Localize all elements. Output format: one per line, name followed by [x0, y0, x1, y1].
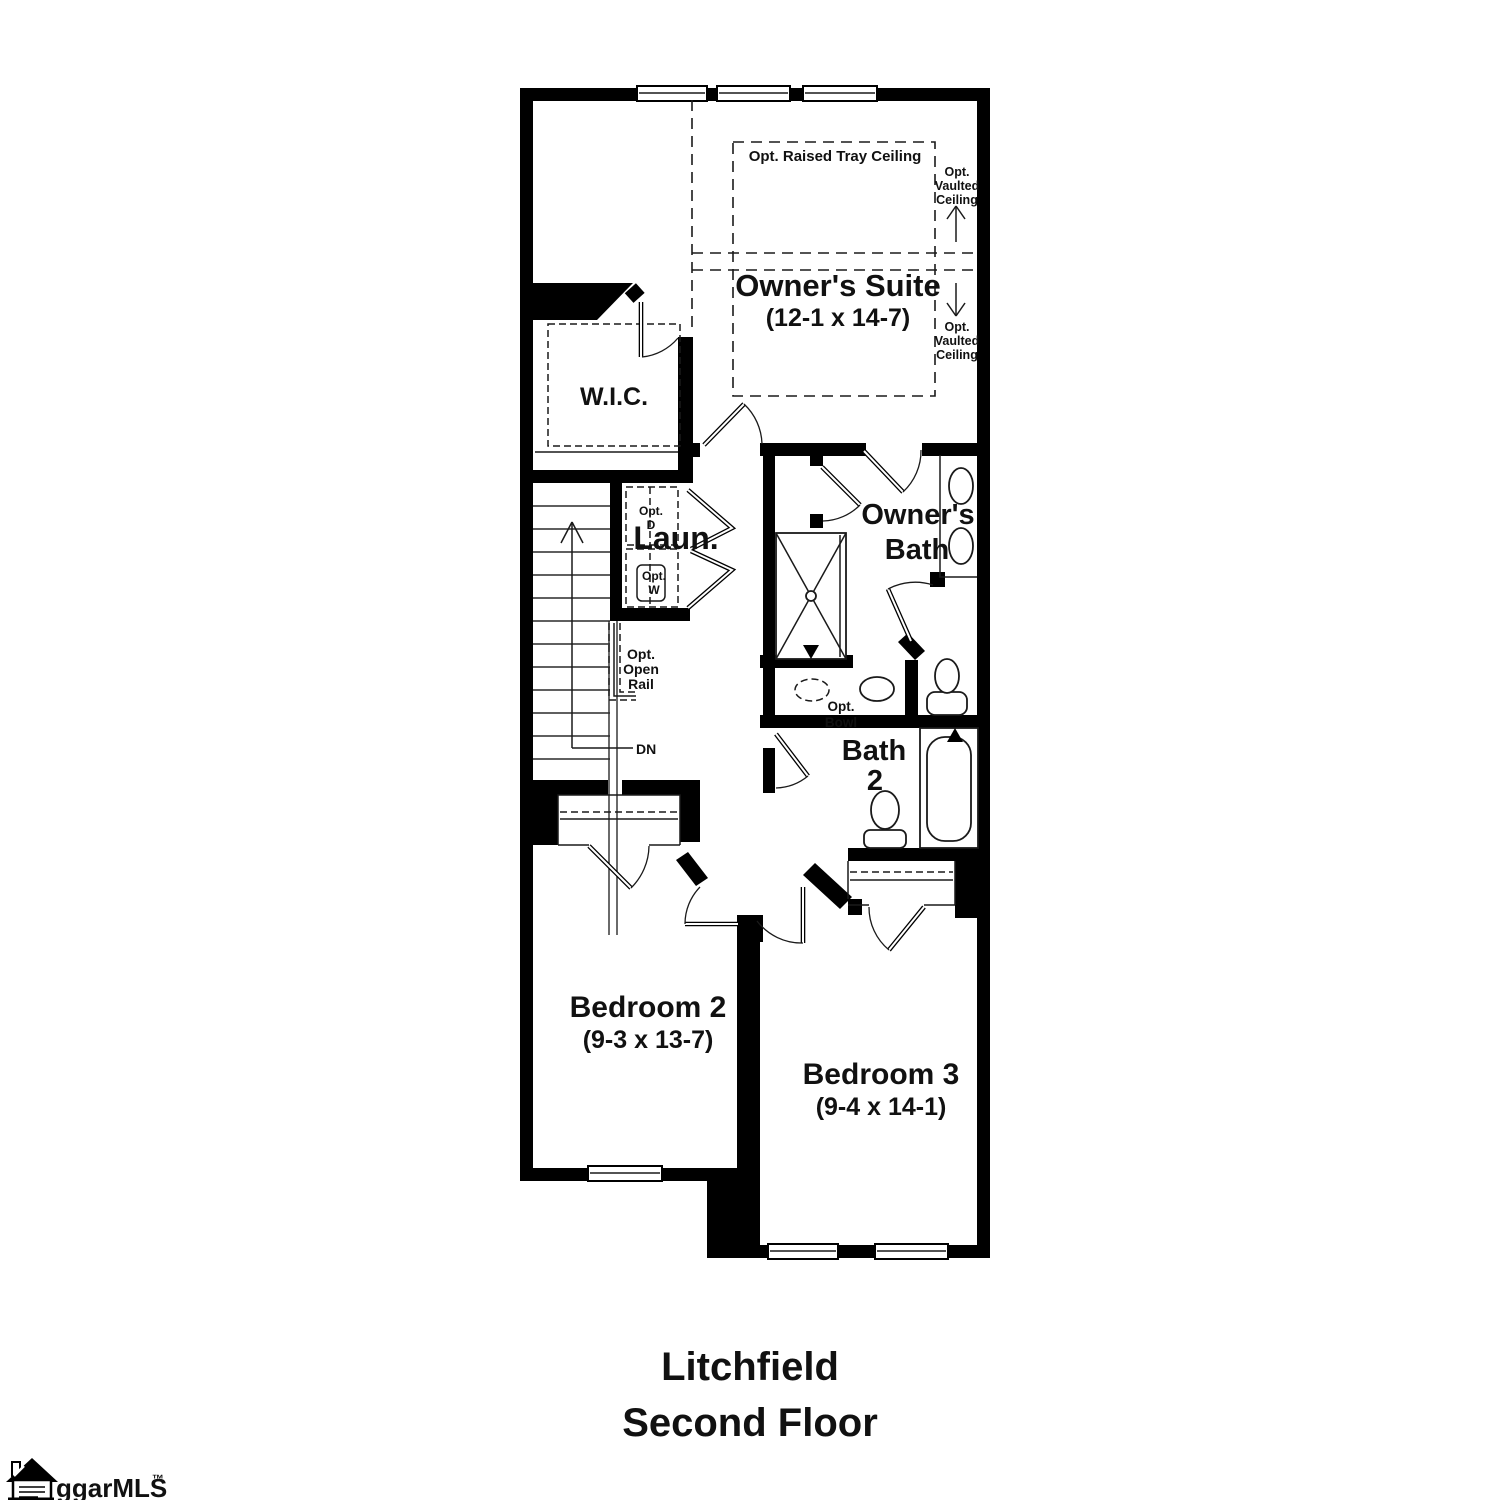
owners-suite-door: [704, 404, 762, 445]
label-dn: DN: [636, 741, 656, 757]
label-opt-w: Opt.: [642, 569, 666, 583]
mls-logo-tm: ™: [152, 1472, 164, 1486]
plan-title: Litchfield Second Floor: [622, 1345, 878, 1445]
label-laundry: Laun.: [633, 520, 718, 556]
vaulted-down-arrow: [947, 283, 965, 316]
bedroom2-closet: [558, 795, 680, 845]
vaulted-up-arrow: [947, 206, 965, 242]
svg-text:Bowl: Bowl: [825, 715, 857, 730]
plan-name: Litchfield: [661, 1345, 839, 1389]
floor-name: Second Floor: [622, 1401, 878, 1445]
label-bedroom2: Bedroom 2: [570, 991, 727, 1024]
svg-text:Ceiling: Ceiling: [936, 193, 978, 207]
label-owners-suite-dims: (12-1 x 14-7): [766, 304, 911, 332]
house-icon: [6, 1458, 58, 1500]
hall-vanity: [795, 677, 894, 701]
water-closet-door: [888, 582, 933, 641]
label-vaulted-lower: Opt.: [945, 320, 970, 334]
bath2-toilet: [864, 791, 906, 848]
opt-bowl-sink: [795, 679, 829, 701]
label-bedroom3-dims: (9-4 x 14-1): [816, 1093, 947, 1121]
ceiling-option-lines: [692, 100, 977, 396]
shower: [776, 533, 846, 659]
linen-door: [822, 467, 860, 521]
bathtub: [920, 728, 978, 848]
label-wic: W.I.C.: [580, 383, 648, 411]
bedroom3-closet: [848, 861, 955, 905]
window: [717, 86, 790, 101]
label-tray-ceiling: Opt. Raised Tray Ceiling: [749, 148, 922, 165]
label-opt-d: Opt.: [639, 504, 663, 518]
window: [875, 1244, 948, 1259]
window: [637, 86, 707, 101]
svg-text:Ceiling: Ceiling: [936, 348, 978, 362]
stairs-up-arrow: [561, 522, 633, 748]
mls-logo: ggarMLS ™: [6, 1458, 167, 1500]
label-open-rail: Opt.: [627, 646, 655, 662]
label-vaulted-upper: Opt.: [945, 165, 970, 179]
wic-door: [641, 302, 678, 357]
label-bedroom3: Bedroom 3: [803, 1058, 960, 1091]
bedroom3-closet-door: [869, 907, 924, 950]
window: [768, 1244, 838, 1259]
svg-text:Vaulted: Vaulted: [935, 334, 979, 348]
sink: [860, 677, 894, 701]
svg-text:Rail: Rail: [628, 676, 654, 692]
svg-text:W: W: [648, 583, 660, 597]
mls-logo-text: ggarMLS: [56, 1473, 167, 1500]
bedroom2-door: [685, 887, 738, 924]
svg-text:2: 2: [867, 765, 883, 797]
bedroom2-closet-door: [589, 846, 649, 888]
floor-plan-svg: Opt. Raised Tray Ceiling Opt. Vaulted Ce…: [0, 0, 1500, 1500]
svg-text:Vaulted: Vaulted: [935, 179, 979, 193]
bath2-door: [776, 734, 808, 788]
label-owners-bath: Owner's: [861, 499, 974, 531]
sink: [949, 528, 973, 564]
label-bath2: Bath: [842, 735, 906, 767]
svg-text:Bath: Bath: [885, 534, 949, 566]
owners-toilet: [927, 659, 967, 715]
window: [803, 86, 877, 101]
label-bedroom2-dims: (9-3 x 13-7): [583, 1026, 714, 1054]
label-opt-bowl: Opt.: [828, 699, 855, 714]
window: [588, 1166, 662, 1181]
owners-bath-door: [864, 450, 921, 492]
bedroom3-door: [757, 887, 803, 943]
svg-text:Open: Open: [623, 661, 659, 677]
label-owners-suite: Owner's Suite: [735, 268, 940, 303]
